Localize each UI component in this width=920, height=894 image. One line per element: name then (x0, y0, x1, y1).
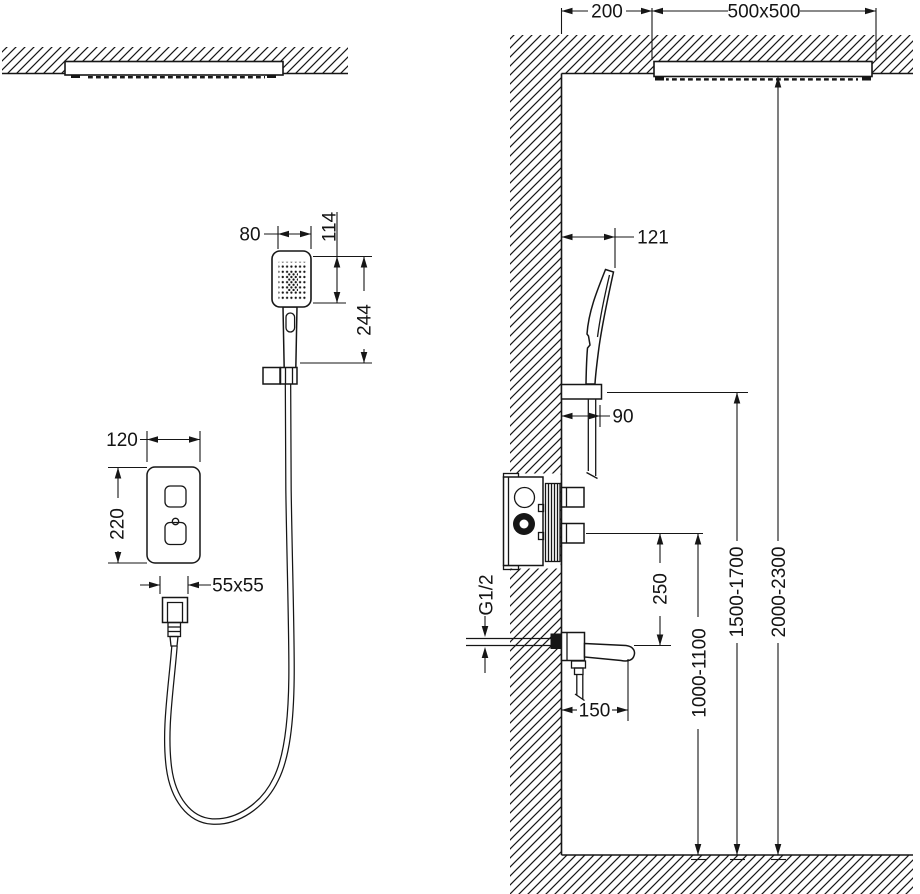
ceiling-head-body-front (65, 62, 283, 76)
ceiling-shower-head-front (65, 62, 283, 79)
dim-hand-shower-reach-label: 121 (637, 228, 669, 249)
spout-wall-union (551, 634, 562, 650)
ceiling-head-body-side (654, 62, 872, 77)
ceiling-head-nozzles-side (666, 78, 858, 81)
hose-connector-nut-front (281, 368, 298, 385)
mixer-knob-top (562, 488, 585, 508)
dim-hand-shower-face-height-label: 114 (320, 211, 341, 242)
ceiling-head-nozzles-front (85, 76, 265, 79)
dim-head-height-label: 2000-2300 (769, 547, 790, 638)
dim-panel-width-label: 120 (106, 430, 138, 451)
spout-arm (585, 644, 635, 661)
dim-panel-height-label: 220 (108, 508, 129, 540)
ceiling-head-clip-left-side (655, 77, 664, 81)
dim-hand-shower-width-label: 80 (239, 225, 260, 246)
panel-plate (147, 467, 200, 563)
dim-outlet-box-label: 55x55 (212, 576, 264, 597)
dim-mixer-to-spout-label: 250 (651, 573, 672, 605)
dim-hand-shower-length-label: 244 (355, 304, 376, 336)
dim-ceiling-shower-size-label: 500x500 (728, 2, 801, 23)
background (0, 0, 920, 894)
control-panel-front (147, 467, 200, 563)
dim-thread-label: G1/2 (477, 574, 498, 615)
dim-mixer-height-label: 1000-1100 (690, 628, 711, 717)
dim-holder-reach-label: 90 (612, 407, 633, 428)
dim-ceiling-offset-label: 200 (591, 2, 623, 23)
hand-shower-bracket-front (263, 368, 280, 385)
mixer-cartridge-bottom-center (520, 520, 529, 529)
installation-diagram: 80 114 244 120 (0, 0, 920, 894)
spray-nozzle-center (287, 272, 298, 291)
diagram-canvas: 80 114 244 120 (0, 0, 920, 894)
ceiling-head-clip-right-side (862, 77, 871, 81)
outlet-escutcheon (163, 598, 188, 623)
dim-spout-length-label: 150 (579, 701, 611, 722)
spout-body (562, 633, 585, 661)
mixer-knob-bottom (562, 524, 585, 544)
wall-bracket-side (562, 385, 602, 400)
ceiling-head-clip-left (71, 75, 80, 79)
dim-holder-height-label: 1500-1700 (727, 547, 748, 638)
ceiling-head-clip-right (267, 75, 276, 79)
